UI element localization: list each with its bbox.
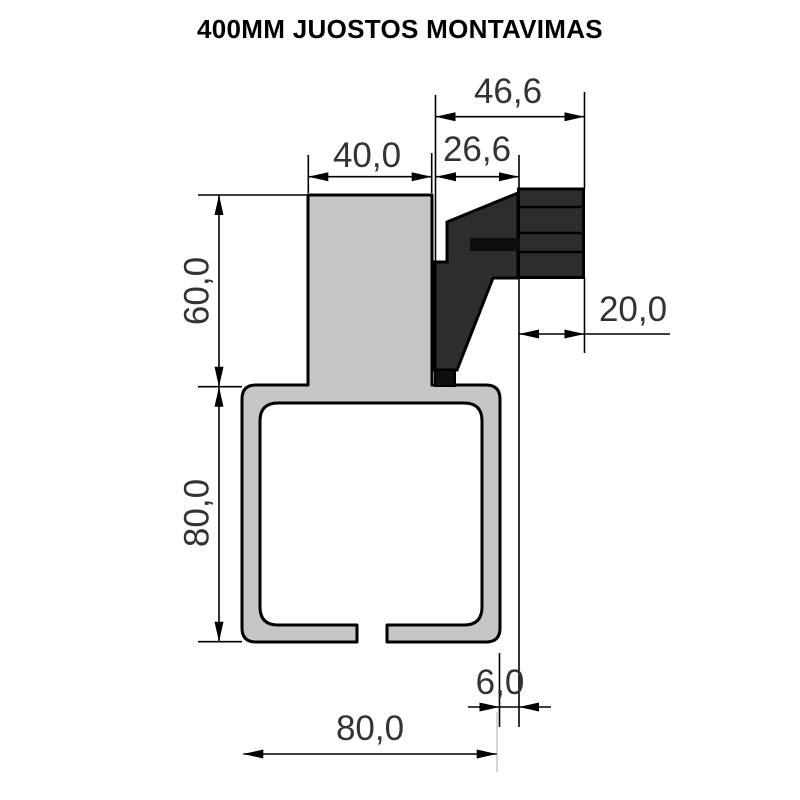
bracket-foot: [435, 370, 455, 386]
arrow-left-icon: [436, 112, 456, 121]
dim-label-channel-width: 80,0: [336, 709, 404, 748]
arrow-left-icon: [519, 330, 539, 339]
drawing-canvas: 400MM JUOSTOS MONTAVIMAS 46,6: [0, 0, 800, 800]
dimension-bracket-width: 26,6: [436, 130, 519, 189]
arrow-right-icon: [412, 172, 432, 181]
dimension-channel-width: 80,0: [243, 709, 497, 772]
dimension-edge-offset: 6,0: [468, 653, 551, 727]
arrow-right-icon: [565, 112, 585, 121]
dim-label-stem-height: 60,0: [178, 257, 217, 325]
dim-label-channel-height: 80,0: [178, 479, 217, 547]
dim-label-bracket-width: 26,6: [443, 130, 511, 169]
arrow-left-icon: [243, 750, 263, 759]
technical-drawing: 46,6 26,6 40,0 60,0: [0, 0, 800, 800]
dim-label-block-depth: 20,0: [599, 290, 667, 329]
arrow-down-icon: [215, 622, 224, 642]
arrow-left-icon: [436, 172, 456, 181]
arrow-right-icon: [499, 172, 519, 181]
dimension-block-depth: 20,0: [519, 277, 670, 727]
arrow-up-icon: [215, 387, 224, 407]
arrow-right-icon: [565, 330, 585, 339]
dim-label-stem-width: 40,0: [333, 136, 401, 175]
arrow-right-icon: [480, 703, 500, 712]
dimension-stem-height: 60,0: [178, 195, 309, 387]
arrow-down-icon: [215, 367, 224, 387]
arrow-up-icon: [215, 195, 224, 215]
arrow-left-icon: [519, 703, 539, 712]
arrow-left-icon: [308, 172, 328, 181]
dim-label-edge-offset: 6,0: [476, 663, 525, 702]
bracket-body: [435, 193, 518, 370]
dimension-channel-height: 80,0: [178, 387, 243, 642]
dimension-stem-width: 40,0: [308, 136, 431, 193]
dim-label-overall-width: 46,6: [474, 72, 542, 111]
bracket-slot: [470, 238, 520, 251]
mounting-bracket: [435, 189, 584, 386]
arrow-right-icon: [477, 750, 497, 759]
